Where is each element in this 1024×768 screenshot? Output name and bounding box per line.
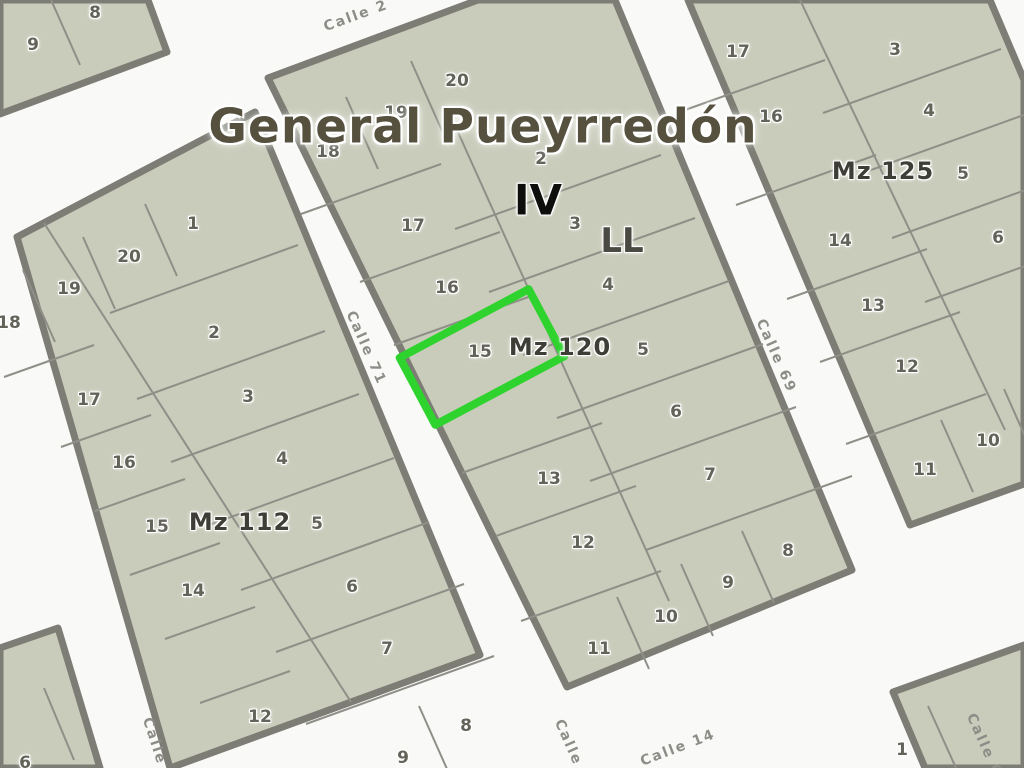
lot-number: 13 [537, 469, 561, 489]
zone-label: LL [600, 221, 643, 261]
block-southeast [893, 645, 1024, 768]
lot-number: 9 [397, 748, 409, 768]
lot-number: 10 [654, 607, 678, 627]
lot-number: 7 [381, 639, 393, 659]
lot-number: 8 [460, 716, 472, 736]
lot-number: 17 [401, 216, 425, 236]
lot-number: 16 [112, 453, 136, 473]
block-label-mz112: Mz 112 [189, 508, 291, 536]
block-northwest [0, 0, 167, 114]
lot-number: 6 [19, 753, 31, 768]
lot-number: 1 [187, 214, 199, 234]
lot-number: 11 [913, 460, 937, 480]
lot-number: 13 [861, 296, 885, 316]
lot-number: 6 [346, 577, 358, 597]
lot-number: 1 [896, 740, 908, 760]
lot-number: 16 [435, 278, 459, 298]
lot-number: 12 [571, 533, 595, 553]
block-label-mz120: Mz 120 [509, 333, 611, 361]
highlighted-lot-number: 15 [468, 342, 492, 362]
lot-number: 12 [248, 707, 272, 727]
lot-number: 14 [828, 231, 852, 251]
lot-number: 18 [0, 313, 21, 333]
lot-number: 9 [27, 35, 39, 55]
lot-number: 6 [992, 228, 1004, 248]
lot-number: 17 [77, 390, 101, 410]
lot-number: 5 [637, 340, 649, 360]
block-label-mz125: Mz 125 [832, 157, 934, 185]
lot-number: 5 [957, 164, 969, 184]
lot-number: 20 [445, 71, 469, 91]
lot-number: 20 [117, 247, 141, 267]
lot-number: 8 [89, 3, 101, 23]
lot-number: 10 [976, 431, 1000, 451]
lot-number: 16 [759, 107, 783, 127]
lot-number: 2 [208, 323, 220, 343]
cadastral-map[interactable]: 9 8 1 20 19 18 2 17 3 16 4 15 5 14 6 12 … [0, 0, 1024, 768]
lot-number: 17 [726, 42, 750, 62]
lot-number: 15 [145, 517, 169, 537]
lot-number: 7 [704, 465, 716, 485]
map-title: General Pueyrredón [208, 100, 757, 155]
lot-number: 4 [923, 101, 935, 121]
lot-number: 3 [242, 387, 254, 407]
lot-number: 19 [57, 279, 81, 299]
lot-number: 5 [311, 514, 323, 534]
lot-number: 3 [569, 214, 581, 234]
lot-number: 8 [782, 541, 794, 561]
lot-number: 9 [722, 573, 734, 593]
district-roman-numeral: IV [514, 176, 562, 225]
lot-number: 14 [181, 581, 205, 601]
block-southwest [0, 628, 100, 768]
lot-number: 3 [889, 40, 901, 60]
lot-number: 4 [276, 449, 288, 469]
lot-number: 6 [670, 402, 682, 422]
lot-number: 12 [895, 357, 919, 377]
lot-number: 11 [587, 639, 611, 659]
lot-number: 4 [602, 275, 614, 295]
